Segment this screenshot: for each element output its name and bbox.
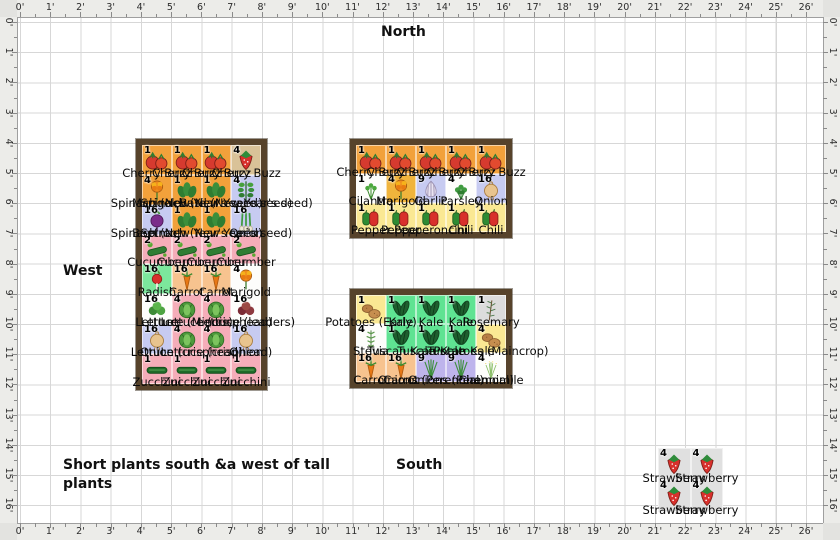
ruler-tick bbox=[504, 523, 505, 528]
plant-count: 1 bbox=[204, 145, 211, 156]
ruler-tick-minor bbox=[428, 523, 429, 527]
ruler-tick-minor bbox=[519, 14, 520, 18]
plant-label: Chamomile bbox=[458, 374, 523, 387]
ruler-tick bbox=[823, 354, 828, 355]
ruler-tick bbox=[201, 523, 202, 528]
ruler-tick-minor bbox=[823, 98, 827, 99]
ruler-tick bbox=[823, 143, 828, 144]
ruler-tick bbox=[12, 294, 17, 295]
ruler-tick-minor bbox=[186, 523, 187, 527]
plant-label: Onion bbox=[229, 227, 263, 240]
ruler-tick bbox=[823, 324, 828, 325]
ruler-tick bbox=[823, 264, 828, 265]
ruler-tick-minor bbox=[14, 37, 18, 38]
ruler-tick-minor bbox=[823, 400, 827, 401]
ruler-tick bbox=[262, 523, 263, 528]
plant-label: Onion bbox=[474, 195, 508, 208]
plant-label: Cherry Buzz bbox=[211, 167, 280, 180]
ruler-tick-minor bbox=[247, 523, 248, 527]
ruler-tick-minor bbox=[823, 158, 827, 159]
plant-count: 1 bbox=[144, 145, 151, 156]
ruler-tick-minor bbox=[549, 14, 550, 18]
ruler-tick bbox=[383, 12, 384, 17]
ruler-tick-minor bbox=[14, 218, 18, 219]
ruler-tick bbox=[806, 523, 807, 528]
ruler-tick bbox=[625, 12, 626, 17]
ruler-tick-minor bbox=[14, 369, 18, 370]
ruler-tick-minor bbox=[247, 14, 248, 18]
ruler-tick-minor bbox=[277, 523, 278, 527]
plant-label: Kale bbox=[419, 316, 444, 329]
plant-count: 1 bbox=[478, 295, 485, 306]
ruler-tick-minor bbox=[216, 523, 217, 527]
ruler-tick-minor bbox=[216, 14, 217, 18]
ruler-tick bbox=[12, 22, 17, 23]
ruler-tick bbox=[823, 384, 828, 385]
garden-planner-canvas[interactable]: North West South Short plants south &a w… bbox=[0, 0, 840, 540]
plant-label: Zucchini bbox=[222, 376, 271, 389]
ruler-tick bbox=[443, 523, 444, 528]
ruler-tick-minor bbox=[458, 14, 459, 18]
ruler-tick-minor bbox=[35, 14, 36, 18]
ruler-tick bbox=[823, 52, 828, 53]
plant-count: 1 bbox=[388, 295, 395, 306]
ruler-tick bbox=[564, 12, 565, 17]
ruler-tick-minor bbox=[14, 67, 18, 68]
plant-count: 1 bbox=[418, 145, 425, 156]
ruler-tick bbox=[232, 523, 233, 528]
ruler-tick-minor bbox=[640, 14, 641, 18]
plant-label: Chili bbox=[449, 224, 474, 237]
ruler-tick-minor bbox=[14, 460, 18, 461]
plant-label: Marigold bbox=[221, 286, 271, 299]
ruler-tick bbox=[50, 12, 51, 17]
ruler-tick bbox=[262, 12, 263, 17]
ruler-tick-minor bbox=[14, 430, 18, 431]
ruler-tick-minor bbox=[126, 523, 127, 527]
ruler-tick bbox=[823, 233, 828, 234]
plant-label: Basil (New Year's seed) bbox=[179, 197, 312, 210]
ruler-tick-minor bbox=[398, 14, 399, 18]
ruler-tick bbox=[12, 173, 17, 174]
ruler-tick-minor bbox=[791, 523, 792, 527]
ruler-tick bbox=[655, 523, 656, 528]
ruler-tick bbox=[715, 12, 716, 17]
ruler-tick bbox=[12, 354, 17, 355]
ruler-tick bbox=[171, 523, 172, 528]
ruler-tick bbox=[171, 12, 172, 17]
ruler-tick bbox=[12, 52, 17, 53]
ruler-tick bbox=[823, 475, 828, 476]
plant-label: Rosemary bbox=[462, 316, 519, 329]
ruler-tick bbox=[823, 203, 828, 204]
ruler-tick bbox=[564, 523, 565, 528]
ruler-tick bbox=[823, 22, 828, 23]
ruler-tick bbox=[12, 384, 17, 385]
ruler-tick-minor bbox=[14, 400, 18, 401]
ruler-tick bbox=[322, 523, 323, 528]
ruler-tick-minor bbox=[730, 14, 731, 18]
plant-count: 1 bbox=[358, 295, 365, 306]
ruler-corner-bottomright bbox=[823, 523, 840, 540]
ruler-tick bbox=[12, 324, 17, 325]
ruler-tick bbox=[12, 143, 17, 144]
ruler-tick-minor bbox=[398, 523, 399, 527]
ruler-tick-minor bbox=[14, 339, 18, 340]
ruler-tick-minor bbox=[65, 523, 66, 527]
ruler-tick-minor bbox=[823, 67, 827, 68]
ruler-tick bbox=[504, 12, 505, 17]
plant-label: Strawberry bbox=[675, 472, 738, 485]
ruler-tick bbox=[655, 12, 656, 17]
plant-count: 4 bbox=[233, 145, 240, 156]
ruler-tick bbox=[823, 82, 828, 83]
ruler-tick bbox=[594, 12, 595, 17]
ruler-tick-minor bbox=[761, 14, 762, 18]
ruler-tick-minor bbox=[823, 430, 827, 431]
ruler-tick-minor bbox=[368, 14, 369, 18]
ruler-tick bbox=[141, 523, 142, 528]
ruler-tick-minor bbox=[823, 188, 827, 189]
ruler-tick-minor bbox=[368, 523, 369, 527]
ruler-tick bbox=[12, 113, 17, 114]
plant-count: 4 bbox=[693, 448, 700, 459]
ruler-tick-minor bbox=[700, 523, 701, 527]
ruler-tick-minor bbox=[823, 460, 827, 461]
ruler-tick-minor bbox=[14, 128, 18, 129]
ruler-tick-minor bbox=[823, 128, 827, 129]
plant-label: Kale bbox=[389, 316, 414, 329]
plant-count: 1 bbox=[448, 295, 455, 306]
ruler-tick bbox=[776, 12, 777, 17]
ruler-tick bbox=[473, 523, 474, 528]
ruler-tick-minor bbox=[14, 309, 18, 310]
compass-west-label[interactable]: West bbox=[63, 263, 102, 279]
ruler-tick-minor bbox=[609, 523, 610, 527]
ruler-tick bbox=[806, 12, 807, 17]
plant-count: 1 bbox=[388, 145, 395, 156]
ruler-tick-minor bbox=[35, 523, 36, 527]
ruler-tick bbox=[50, 523, 51, 528]
ruler-tick bbox=[232, 12, 233, 17]
ruler-tick bbox=[685, 523, 686, 528]
ruler-tick bbox=[685, 12, 686, 17]
ruler-tick bbox=[746, 12, 747, 17]
plan-note-text[interactable]: Short plants south &a west of tall plant… bbox=[63, 456, 341, 494]
plant-count: 1 bbox=[174, 145, 181, 156]
ruler-tick bbox=[473, 12, 474, 17]
plant-label: Lettuce (leaders) bbox=[197, 316, 295, 329]
ruler-tick-minor bbox=[65, 14, 66, 18]
ruler-tick bbox=[20, 12, 21, 17]
ruler-tick-minor bbox=[823, 279, 827, 280]
ruler-tick bbox=[322, 12, 323, 17]
ruler-tick-minor bbox=[609, 14, 610, 18]
plant-label: Spinach (New Year's seed) bbox=[141, 227, 293, 240]
ruler-tick bbox=[353, 523, 354, 528]
ruler-tick-minor bbox=[670, 14, 671, 18]
ruler-tick bbox=[625, 523, 626, 528]
ruler-tick bbox=[823, 113, 828, 114]
ruler-tick bbox=[80, 523, 81, 528]
ruler-tick-minor bbox=[761, 523, 762, 527]
ruler-tick bbox=[823, 294, 828, 295]
ruler-tick-minor bbox=[489, 523, 490, 527]
ruler-tick bbox=[201, 12, 202, 17]
ruler-tick-minor bbox=[14, 188, 18, 189]
compass-south-label[interactable]: South bbox=[396, 457, 442, 473]
ruler-tick-minor bbox=[337, 523, 338, 527]
ruler-tick-minor bbox=[96, 523, 97, 527]
ruler-tick-minor bbox=[14, 249, 18, 250]
ruler-tick bbox=[823, 505, 828, 506]
plant-label: Strawberry bbox=[675, 504, 738, 517]
ruler-tick-minor bbox=[823, 309, 827, 310]
plant-count: 1 bbox=[358, 145, 365, 156]
ruler-tick bbox=[443, 12, 444, 17]
ruler-tick bbox=[12, 82, 17, 83]
ruler-tick-minor bbox=[337, 14, 338, 18]
ruler-tick bbox=[292, 12, 293, 17]
ruler-tick bbox=[111, 12, 112, 17]
ruler-tick-minor bbox=[14, 279, 18, 280]
ruler-tick-minor bbox=[670, 523, 671, 527]
ruler-tick bbox=[823, 173, 828, 174]
ruler-tick-minor bbox=[700, 14, 701, 18]
plant-count: 1 bbox=[478, 145, 485, 156]
ruler-tick-minor bbox=[823, 339, 827, 340]
ruler-tick-minor bbox=[458, 523, 459, 527]
ruler-tick-minor bbox=[14, 490, 18, 491]
ruler-tick-minor bbox=[823, 249, 827, 250]
plant-count: 4 bbox=[660, 448, 667, 459]
ruler-tick bbox=[12, 415, 17, 416]
ruler-tick-minor bbox=[307, 14, 308, 18]
ruler-tick-minor bbox=[489, 14, 490, 18]
ruler-tick bbox=[353, 12, 354, 17]
ruler-tick-minor bbox=[791, 14, 792, 18]
ruler-tick-minor bbox=[823, 369, 827, 370]
ruler-tick-minor bbox=[186, 14, 187, 18]
plant-label: Onion bbox=[229, 346, 263, 359]
ruler-tick bbox=[776, 523, 777, 528]
ruler-tick bbox=[534, 523, 535, 528]
ruler-tick bbox=[111, 523, 112, 528]
ruler-tick-minor bbox=[730, 523, 731, 527]
ruler-tick-minor bbox=[277, 14, 278, 18]
plant-label: Cucumber bbox=[217, 256, 276, 269]
ruler-tick bbox=[594, 523, 595, 528]
ruler-tick bbox=[12, 203, 17, 204]
ruler-tick bbox=[12, 264, 17, 265]
ruler-tick bbox=[413, 12, 414, 17]
ruler-tick-minor bbox=[307, 523, 308, 527]
plant-label: Potatoes (Maincrop) bbox=[434, 345, 549, 358]
ruler-tick bbox=[80, 12, 81, 17]
ruler-tick bbox=[20, 523, 21, 528]
ruler-tick bbox=[823, 445, 828, 446]
ruler-tick-minor bbox=[14, 158, 18, 159]
ruler-tick-minor bbox=[519, 523, 520, 527]
ruler-tick-minor bbox=[126, 14, 127, 18]
ruler-tick-minor bbox=[640, 523, 641, 527]
ruler-tick bbox=[12, 445, 17, 446]
ruler-tick-minor bbox=[823, 218, 827, 219]
ruler-tick bbox=[12, 475, 17, 476]
ruler-tick bbox=[292, 523, 293, 528]
ruler-tick-minor bbox=[156, 14, 157, 18]
ruler-tick bbox=[383, 523, 384, 528]
ruler-tick-minor bbox=[579, 523, 580, 527]
ruler-tick-minor bbox=[823, 37, 827, 38]
ruler-tick-minor bbox=[96, 14, 97, 18]
ruler-tick bbox=[12, 233, 17, 234]
ruler-tick bbox=[534, 12, 535, 17]
plant-label: Cherry Buzz bbox=[456, 166, 525, 179]
ruler-tick bbox=[823, 415, 828, 416]
plant-count: 1 bbox=[448, 145, 455, 156]
ruler-tick bbox=[746, 523, 747, 528]
ruler-tick-minor bbox=[579, 14, 580, 18]
ruler-tick bbox=[12, 505, 17, 506]
ruler-tick bbox=[141, 12, 142, 17]
ruler-tick-minor bbox=[823, 490, 827, 491]
plant-count: 1 bbox=[418, 295, 425, 306]
ruler-tick-minor bbox=[549, 523, 550, 527]
ruler-tick-minor bbox=[428, 14, 429, 18]
ruler-tick-minor bbox=[14, 98, 18, 99]
compass-north-label[interactable]: North bbox=[381, 24, 426, 40]
ruler-tick-minor bbox=[156, 523, 157, 527]
plant-label: Chili bbox=[479, 224, 504, 237]
ruler-tick bbox=[715, 523, 716, 528]
ruler-tick bbox=[413, 523, 414, 528]
